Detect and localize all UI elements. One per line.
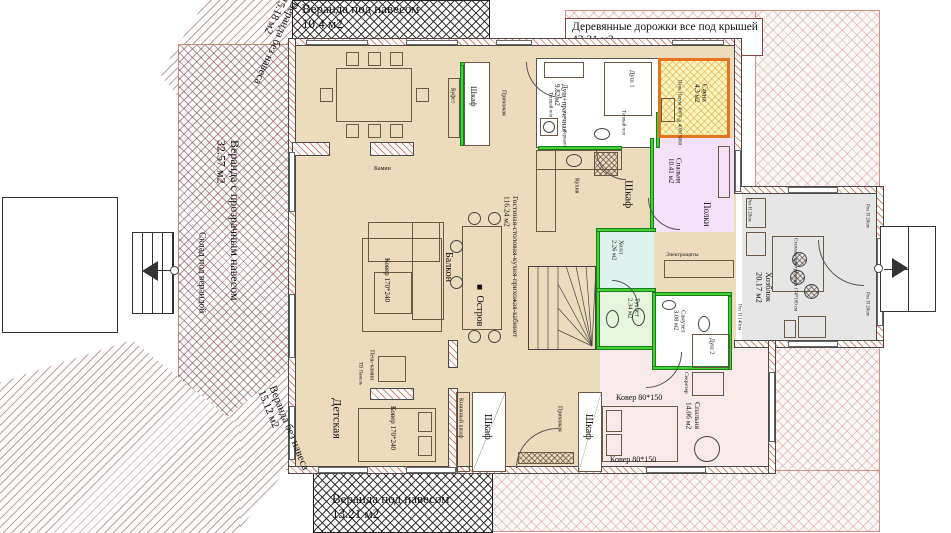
bedroom2-label: Спальня 14.06 м2 [684,402,701,429]
stove-fireplace-label: Печь-камин [368,350,375,380]
window [788,187,838,193]
stool [468,212,481,225]
left-porch [2,197,118,333]
veranda-left-label: Веранда с прозрачным навесом 32.57 м2 [214,140,241,301]
wardrobe-label: Шкаф [468,86,477,107]
chair [368,124,381,138]
entry-wardrobe-label: Шкаф [583,414,594,440]
veranda-top-label: Веранда под навесом 10.4 м2 [302,2,419,31]
storage-under-veranda-label: Склад под верандой [196,232,207,313]
entry-label: Прихожая [556,406,563,432]
chair [416,88,429,102]
island-marker: ■ [474,282,485,293]
stool [488,330,501,343]
socket-140-label: Роз Н 140см [736,304,742,330]
tv-panel-label: ТВ Панель [357,362,363,385]
warm-floor-label: Теплый пол [620,110,626,135]
window [672,40,724,45]
rug80-label: Ковер 80*150 [616,394,662,403]
veranda-bottom-label: Веранда под навесом 13.21 м2 [332,492,449,521]
chair [320,88,333,102]
window [318,467,368,473]
window [306,40,368,45]
hall-floor [600,230,654,290]
right-entrance-arrow [892,258,908,278]
green-wall-toilet-south [596,346,656,350]
kitchen-label: Кухня [573,178,580,194]
kids-rug-label: Ковер 170*240 [388,406,396,450]
window [496,40,532,45]
rug80-label: Ковер 80*150 [610,456,656,465]
boiler [798,316,826,338]
window [735,150,741,192]
right-entrance-line [884,269,908,270]
fireplace-wall-stub-left [292,142,330,156]
utility-sink [784,320,796,338]
chair [390,124,403,138]
electro-label: Электрощиты [666,252,699,258]
kids-room-label: Детская [330,398,343,439]
kitchen-sink [566,154,582,167]
kids-wall-stub [370,388,414,400]
chair [390,52,403,66]
toilet-label: Туалет 2.34 м2 [626,298,641,318]
hall-label: Холл 2.26 м2 [610,240,625,260]
warm-floor-label: Теплый пол [547,92,553,117]
electro-panel [664,260,734,278]
stool [468,330,481,343]
window [289,294,295,358]
window [769,372,775,442]
buffet-label: Буфет [449,88,456,103]
stool [488,212,501,225]
right-entrance-node [874,264,883,273]
tambour-entry-label: Прихожая [500,90,507,116]
shelf-unit [718,146,730,198]
shower-laundry-label: Душ+прачечная 9.82 м2 [552,84,568,132]
secretary-desk [692,372,724,396]
window [406,40,458,45]
walkways-bottom-band [490,470,880,532]
toilet-bowl [698,316,710,332]
pillow [418,412,432,432]
chair [346,52,359,66]
socket-label: Роз Н 20см [864,292,870,316]
window [406,467,456,473]
green-wall-bedroom1-west [650,138,654,232]
island-label: ■ Остров [474,282,485,326]
buffet-cabinet [448,78,460,138]
sauna-label: Сауна 4.3 м2 [692,84,708,102]
kitchen-counter-left [536,150,556,232]
pillow [606,434,622,456]
utility-label: Хозблок 20.17 м2 [754,272,773,303]
green-wall-hall-north [596,228,656,232]
socket-label: Роз Н 20см [864,204,870,228]
fireplace-label: Камин [374,166,391,173]
bookcase-label: Книжный шкаф [457,398,464,439]
fireplace-wall-stub [370,142,414,156]
balcony-label: Балкон [443,252,454,282]
left-entrance-node [170,266,179,275]
mirror-label: Зеркало [561,130,567,147]
secretary-label: Секретер [683,372,689,394]
dining-table [336,68,412,122]
left-entrance-arrow [142,261,158,281]
shelves-label: Полки [702,202,712,227]
bedroom1-wardrobe-label: Шкаф [622,180,634,208]
floor-plan: Деревянные дорожки все под крышей 43.31 … [0,0,951,533]
shower2-label: Душ 2 [708,338,715,354]
living-room-label: Гостиная-столовая-кухня-прихожая-кабинет… [502,196,519,337]
shower1-label: Душ 1 [628,70,635,88]
washbasin [594,128,610,140]
hall-wardrobe-label: Шкаф [482,414,493,440]
pillow [418,436,432,456]
chair [368,52,381,66]
right-entrance-divider [908,226,909,312]
kids-partition-stub [448,340,458,368]
living-rug-label: Ковер 170*240 [382,258,390,302]
sauna-heater [661,98,675,122]
green-wall-bath-north [654,292,732,296]
window [646,467,706,473]
toilet-bowl [606,310,619,328]
pillow [606,410,622,432]
window [788,341,838,347]
bathroom-label: Санузел 3.08 м2 [672,310,687,333]
rack-label: Стеллаж для хранения 174*100 см [792,238,798,311]
bath-sink [662,300,676,310]
socket-label: Роз Н 20см [746,198,752,222]
sofa [412,222,444,320]
utility-cabinet [746,232,766,256]
armchair [694,436,720,462]
window [289,152,295,212]
chair [346,124,359,138]
staircase [528,266,596,350]
coffee-table [374,272,412,314]
sauna-note: Печь Harvia 400V №4000 5060 [676,80,682,145]
stove-fireplace [378,356,406,382]
bedroom1-label: Спальня 10.41 м2 [666,158,682,183]
washer-symbol [804,284,819,299]
